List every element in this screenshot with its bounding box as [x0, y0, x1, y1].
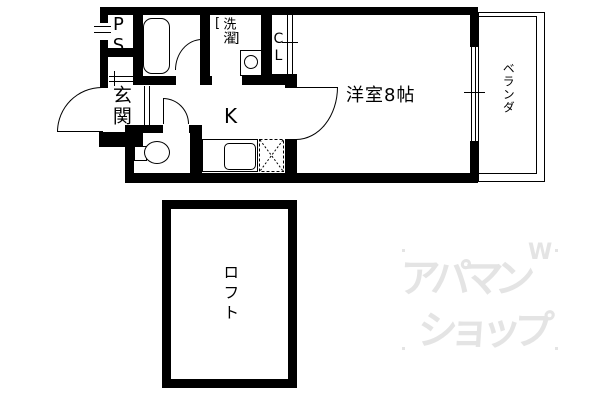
bathroom-door-swing — [175, 39, 202, 70]
veranda-label: ベランダ — [501, 62, 514, 114]
loft-label: ロフト — [221, 264, 239, 324]
watermark-line1: アパマン — [398, 246, 529, 304]
refrigerator-space — [259, 139, 284, 172]
wall — [125, 173, 478, 183]
watermark-line2: ショップ — [416, 298, 548, 356]
wall — [133, 7, 143, 85]
loft: ロフト — [162, 200, 297, 388]
laundry-label: [ 洗濯 ] — [215, 17, 239, 45]
entrance-label: 玄関 — [110, 85, 131, 127]
balcony-window-icon — [471, 47, 472, 141]
watermark-dot — [555, 347, 558, 350]
watermark-dot — [402, 347, 405, 350]
entrance-step-line — [109, 76, 133, 77]
wall — [470, 7, 478, 47]
wall — [99, 132, 143, 147]
entrance-door-panel — [57, 131, 103, 132]
balcony-window-icon — [464, 92, 485, 93]
wall — [100, 7, 478, 15]
western-room-label: 洋室8帖 — [346, 86, 415, 106]
floor-plan: アパマン W ショップ ベランダ — [0, 0, 600, 400]
toilet-bowl — [144, 141, 170, 164]
wall — [143, 76, 176, 85]
bathtub — [143, 18, 170, 74]
entrance-step-line — [114, 71, 115, 86]
balcony-window-icon — [475, 47, 476, 141]
watermark-logo-mark: W — [528, 240, 552, 265]
entrance-step-line — [109, 81, 133, 82]
toilet-door-panel — [163, 98, 164, 124]
pipe-space-label: PS — [104, 12, 132, 58]
toilet-door-swing — [163, 98, 189, 124]
bathroom-door-panel — [202, 39, 203, 71]
room-door-swing — [296, 87, 338, 140]
room-door-panel — [296, 87, 338, 88]
wall — [470, 141, 478, 183]
watermark-dot — [555, 249, 558, 252]
kitchen-label: K — [224, 105, 237, 127]
laundry-bracket-close: ] — [234, 32, 239, 45]
laundry-label-text: 洗濯 — [220, 17, 234, 45]
closet-door-icon — [287, 15, 288, 75]
wall — [200, 76, 212, 85]
entrance-hall-step-line — [144, 86, 145, 126]
entrance-hall-step-line — [149, 86, 150, 126]
entrance-door-swing — [57, 87, 102, 132]
watermark-dot — [402, 249, 405, 252]
kitchen-sink — [224, 143, 256, 170]
closet-door-icon — [292, 15, 293, 75]
washing-machine-drain — [244, 55, 258, 69]
closet-label: CL — [270, 31, 285, 65]
